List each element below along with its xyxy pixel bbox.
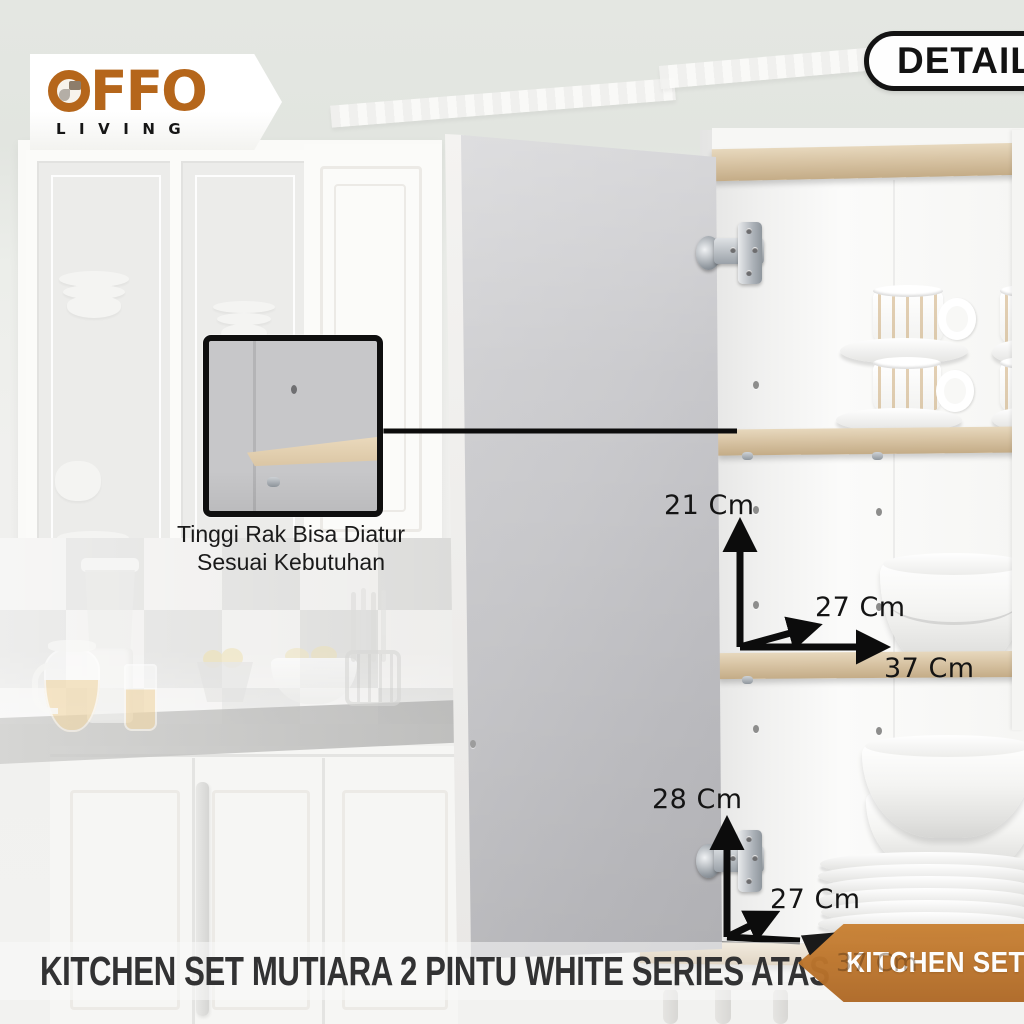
cup-stack: [830, 282, 980, 432]
cabinet-top-panel: [712, 143, 1024, 182]
callout-caption-line2: Sesuai Kebutuhan: [160, 548, 422, 576]
dim-middle-height: 21 Cm: [664, 490, 755, 521]
brand-banner: FFO LIVING: [30, 54, 282, 150]
product-detail-sheet: 21 Cm 27 Cm 37 Cm 28 Cm 27 Cm Tinggi Rak…: [0, 0, 1024, 1024]
background-lemon-bowl: [197, 648, 253, 708]
dim-bottom-depth: 27 Cm: [770, 884, 861, 915]
background-whisk-holder: [345, 592, 393, 698]
dim-middle-depth: 27 Cm: [815, 592, 906, 623]
middle-shelf: [718, 426, 1024, 455]
brand-name: FFO: [90, 71, 206, 111]
callout-caption-line1: Tinggi Rak Bisa Diatur: [160, 520, 422, 548]
callout-caption: Tinggi Rak Bisa Diatur Sesuai Kebutuhan: [160, 520, 422, 576]
dim-bottom-width-ghost: 37 Cm: [836, 948, 918, 977]
background-juice-glass: [124, 664, 157, 731]
detail-badge: DETAIL 2: [864, 31, 1024, 91]
cabinet-right-frame: [1012, 130, 1024, 730]
lower-shelf: [718, 651, 1024, 679]
cabinet-door: [440, 128, 730, 968]
glass-cabinet-door: [26, 150, 186, 574]
hinge-bottom: [696, 828, 768, 894]
detail-badge-label: DETAIL 2: [897, 40, 1024, 82]
background-juice-pitcher: [38, 640, 106, 734]
brand-tagline: LIVING: [56, 120, 194, 138]
product-title: KITCHEN SET MUTIARA 2 PINTU WHITE SERIES…: [40, 948, 830, 995]
hinge-top: [696, 220, 768, 286]
dim-bottom-height: 28 Cm: [652, 784, 743, 815]
crown-molding-left: [330, 78, 676, 128]
callout-box: [203, 335, 383, 517]
offo-logo-mark: [48, 70, 90, 112]
dim-middle-width: 37 Cm: [884, 653, 975, 684]
